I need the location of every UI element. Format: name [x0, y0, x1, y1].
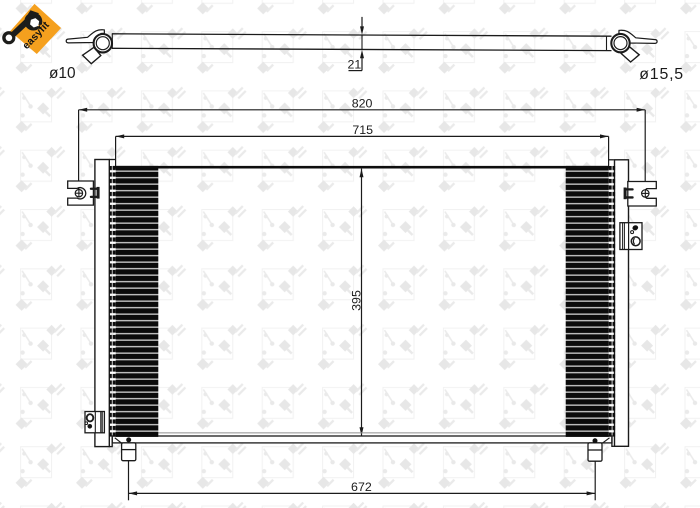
svg-text:820: 820: [352, 97, 373, 111]
svg-text:715: 715: [352, 123, 373, 137]
svg-text:672: 672: [351, 480, 372, 494]
svg-text:21: 21: [348, 58, 362, 72]
svg-text:ø10: ø10: [49, 65, 76, 82]
svg-text:ø15,5: ø15,5: [639, 66, 684, 83]
